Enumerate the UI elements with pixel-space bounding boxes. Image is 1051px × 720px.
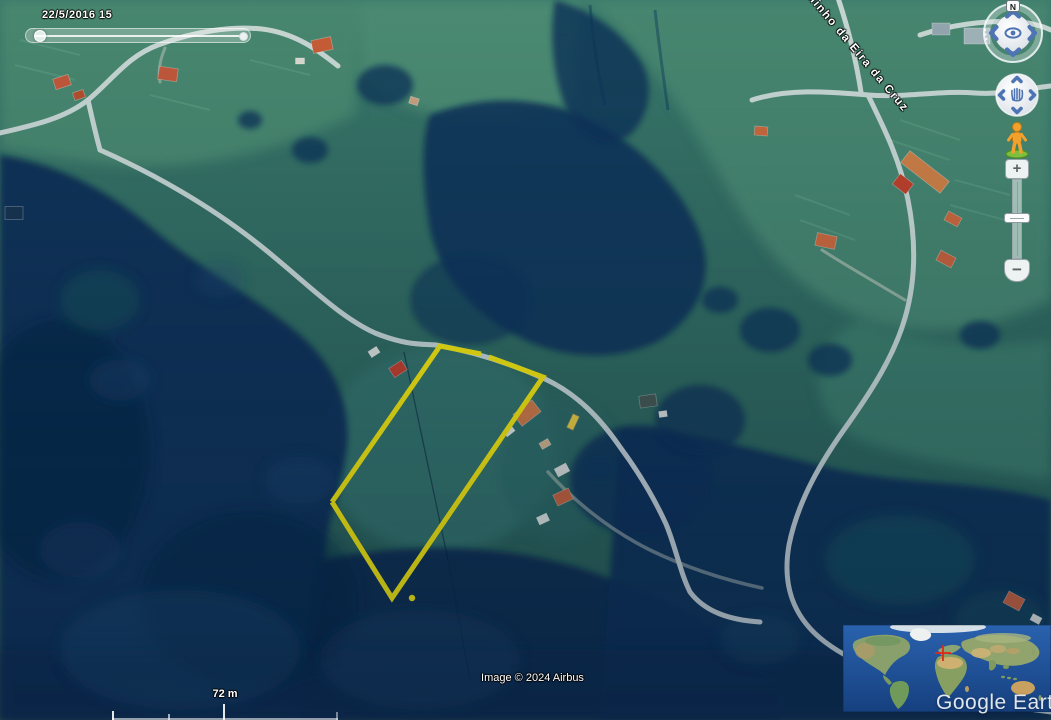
imagery-date-label: 22/5/2016 15 [42, 9, 112, 21]
copyright-label: Image © 2024 Airbus [440, 672, 625, 684]
time-slider[interactable] [25, 28, 251, 43]
time-slider-track[interactable] [35, 35, 240, 37]
scale-label: 72 m [205, 688, 245, 700]
zoom-in-button[interactable]: + [1005, 159, 1029, 179]
zoom-out-button[interactable]: − [1004, 259, 1030, 282]
vignette [0, 0, 1051, 720]
zoom-slider-thumb[interactable] [1004, 213, 1030, 223]
zoom-control: + − [1002, 159, 1032, 283]
time-slider-end-button[interactable] [239, 32, 248, 41]
google-earth-logo: Google Earth [936, 691, 1051, 715]
move-joystick[interactable] [993, 71, 1041, 119]
pegman[interactable] [1002, 120, 1032, 160]
pegman-base [1006, 150, 1028, 158]
satellite-map[interactable] [0, 0, 1051, 720]
time-slider-thumb[interactable] [34, 30, 46, 42]
google-earth-window: { "timeline": { "date_label": "22/5/2016… [0, 0, 1051, 720]
north-button[interactable]: N [1006, 0, 1020, 12]
